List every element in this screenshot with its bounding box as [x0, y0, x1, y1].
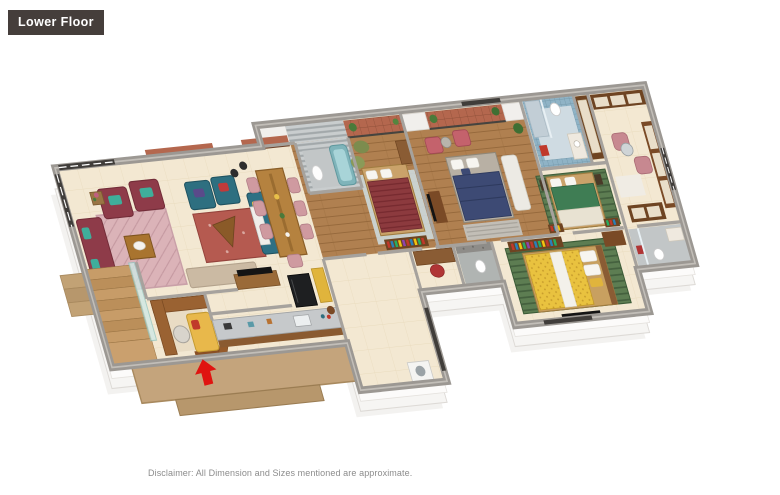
floor-plan: [0, 0, 780, 490]
kitchen-sink: [293, 315, 311, 327]
wardrobe: [601, 230, 626, 247]
floor-plan-svg: [0, 0, 780, 490]
floor-label: Lower Floor: [8, 10, 104, 35]
vanity: [666, 227, 685, 241]
disclaimer-text: Disclaimer: All Dimension and Sizes ment…: [148, 468, 412, 478]
